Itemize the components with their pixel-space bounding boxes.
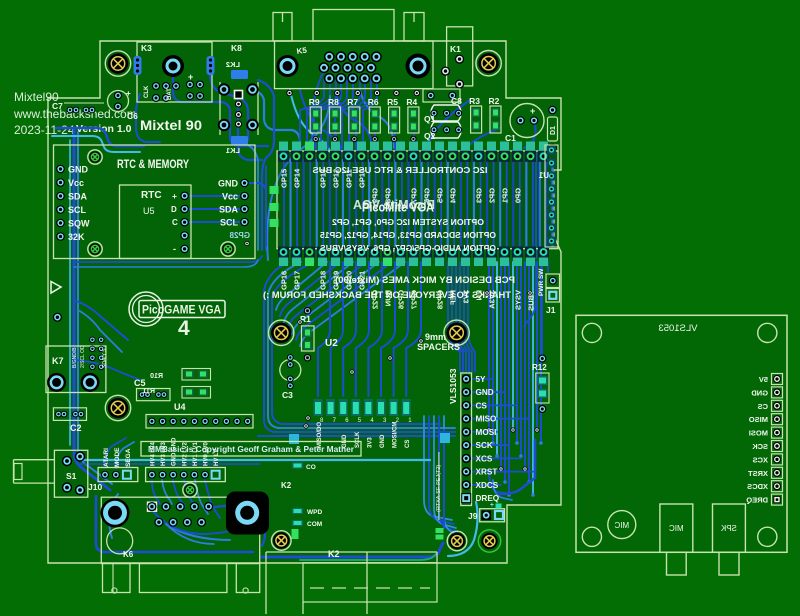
svg-text:+: +: [530, 106, 535, 116]
svg-text:R10: R10: [150, 373, 163, 380]
svg-text:+: +: [172, 191, 177, 201]
svg-text:J1: J1: [546, 305, 556, 315]
svg-text:R7: R7: [347, 97, 358, 107]
svg-text:S1: S1: [66, 471, 77, 481]
svg-text:OPTION SYSTEM I2C GP0, GP1, GP: OPTION SYSTEM I2C GP0, GP1, GP2: [332, 217, 484, 227]
svg-text:U1: U1: [538, 171, 549, 180]
svg-text:PWR SW: PWR SW: [538, 268, 545, 296]
svg-text:CS: CS: [758, 402, 768, 411]
svg-text:R3: R3: [469, 96, 480, 106]
svg-text:R2: R2: [489, 96, 500, 106]
svg-text:U5: U5: [143, 206, 155, 216]
svg-text:GP3: GP3: [474, 188, 483, 203]
svg-text:K5: K5: [296, 46, 308, 56]
svg-text:MOSI: MOSI: [749, 429, 768, 438]
svg-text:D: D: [171, 205, 177, 214]
svg-text:SQW: SQW: [68, 219, 90, 229]
svg-text:SPK: SPK: [720, 524, 737, 533]
svg-text:GP28: GP28: [229, 231, 250, 240]
svg-text:COM: COM: [307, 521, 322, 528]
svg-text:GND: GND: [751, 388, 768, 397]
svg-text:DREQ: DREQ: [476, 494, 500, 503]
svg-text:SEGA: SEGA: [125, 448, 132, 467]
svg-text:XCS: XCS: [753, 455, 768, 464]
svg-text:C8: C8: [451, 96, 462, 106]
svg-text:DREQ: DREQ: [746, 496, 768, 505]
svg-text:CLK: CLK: [144, 85, 150, 98]
svg-text:J9: J9: [468, 511, 478, 521]
svg-text:4: 4: [178, 317, 190, 340]
svg-text:R9: R9: [309, 97, 320, 107]
svg-text:GND: GND: [68, 165, 89, 175]
svg-text:SCL: SCL: [220, 218, 239, 228]
svg-text:SCK: SCK: [752, 442, 768, 451]
svg-text:VSYS: VSYS: [513, 290, 522, 310]
svg-text:B/GND/B: B/GND/B: [72, 347, 78, 368]
svg-text:PicoMite VGA: PicoMite VGA: [362, 201, 434, 215]
svg-text:XDCS: XDCS: [747, 482, 768, 491]
svg-text:C6: C6: [127, 111, 138, 121]
svg-text:K6: K6: [123, 550, 134, 559]
svg-text:LK2: LK2: [226, 60, 240, 69]
svg-text:K8: K8: [231, 43, 242, 53]
svg-text:K7: K7: [52, 356, 64, 366]
svg-text:MODE: MODE: [114, 447, 121, 467]
svg-text:+: +: [490, 502, 494, 509]
svg-text:XDCS: XDCS: [476, 481, 499, 490]
svg-text:XCS: XCS: [476, 454, 493, 463]
svg-text:SCLK: SCLK: [355, 431, 361, 448]
svg-text:GND: GND: [476, 388, 494, 397]
svg-text:C: C: [172, 218, 178, 227]
svg-text:2/SCL OD: 2/SCL OD: [80, 345, 86, 368]
svg-text:K3: K3: [141, 43, 152, 53]
svg-text:OPTION AUDIO GP5/GP7, GP6, VSY: OPTION AUDIO GP5/GP7, GP6, VSYS/VBUS: [320, 243, 496, 253]
svg-text:C7: C7: [52, 101, 63, 111]
svg-text:I2C CONTROLLER & RTC USE I2C B: I2C CONTROLLER & RTC USE I2C BUS: [312, 166, 488, 175]
svg-text:Q2: Q2: [424, 131, 436, 141]
svg-text:C5: C5: [134, 378, 146, 388]
svg-text:GND: GND: [218, 179, 239, 189]
svg-text:MIC: MIC: [614, 521, 629, 530]
svg-text:U4: U4: [174, 402, 186, 412]
svg-text:GP4: GP4: [448, 188, 457, 204]
svg-text:CO: CO: [306, 464, 316, 471]
svg-text:K1: K1: [450, 44, 461, 54]
svg-text:Vcc: Vcc: [68, 178, 84, 188]
svg-text:SPACERS: SPACERS: [417, 342, 460, 352]
svg-text:J10: J10: [88, 482, 102, 492]
svg-text:MOSI/CM: MOSI/CM: [393, 422, 399, 448]
svg-text:R11: R11: [142, 388, 155, 395]
svg-text:R4: R4: [406, 97, 417, 107]
svg-text:PicoGAME VGA: PicoGAME VGA: [142, 305, 221, 317]
svg-text:XRST: XRST: [476, 468, 498, 477]
svg-text:RTC & MEMORY: RTC & MEMORY: [117, 159, 189, 171]
svg-text:PCB DESIGN BY MICK AMES (Mixte: PCB DESIGN BY MICK AMES (Mixtel90): [335, 275, 515, 285]
svg-text:XRST: XRST: [748, 469, 768, 478]
svg-text:+: +: [126, 89, 131, 98]
svg-text:D1: D1: [550, 126, 557, 135]
svg-text:MOSI: MOSI: [476, 428, 497, 437]
svg-text:VLS1053: VLS1053: [658, 323, 697, 334]
svg-text:MISO: MISO: [476, 415, 498, 424]
svg-text:R8: R8: [328, 97, 339, 107]
svg-text:32K: 32K: [68, 232, 85, 242]
svg-text:R6: R6: [368, 97, 379, 107]
svg-text:R5: R5: [387, 97, 398, 107]
svg-text:MIC: MIC: [669, 524, 684, 533]
svg-text:SDA: SDA: [68, 192, 88, 202]
svg-text:DAT: DAT: [167, 88, 173, 100]
svg-text:GP18: GP18: [318, 271, 327, 290]
svg-text:GP15: GP15: [279, 169, 288, 188]
svg-text:C3: C3: [282, 390, 293, 400]
svg-text:VLS1053: VLS1053: [448, 368, 458, 404]
svg-text:CS: CS: [476, 401, 488, 410]
svg-text:GP5: GP5: [435, 188, 444, 203]
svg-text:C2: C2: [70, 423, 82, 433]
svg-text:SCK: SCK: [476, 441, 493, 450]
svg-text:5Y: 5Y: [476, 375, 487, 384]
svg-text:GP2: GP2: [487, 188, 496, 203]
svg-text:Vcc: Vcc: [222, 192, 238, 202]
svg-text:SDA/Y S: SDA/Y S: [102, 348, 108, 368]
svg-text:THANKS TO EVERYONE ON THE BACK: THANKS TO EVERYONE ON THE BACKSHED FORUM…: [263, 290, 511, 300]
svg-text:GP17: GP17: [292, 271, 301, 290]
svg-text:MISO: MISO: [749, 415, 768, 424]
svg-text:2023-11-24: 2023-11-24: [14, 123, 75, 137]
svg-text:U2: U2: [325, 338, 338, 349]
svg-text:K2: K2: [281, 481, 292, 490]
svg-text:5V: 5V: [759, 375, 768, 384]
svg-text:+: +: [188, 72, 193, 82]
svg-text:ATARI: ATARI: [103, 448, 110, 467]
svg-text:Mixtel 90: Mixtel 90: [140, 117, 202, 133]
svg-text:GP16: GP16: [279, 271, 288, 290]
svg-text:3V3: 3V3: [367, 437, 373, 448]
svg-text:K2: K2: [328, 549, 340, 559]
svg-text:RTC: RTC: [141, 190, 162, 201]
svg-text:SCL: SCL: [68, 205, 87, 215]
svg-text:OPTION SDCARD GP13, GP14, GP12: OPTION SDCARD GP13, GP14, GP12, GP15: [320, 230, 496, 240]
svg-text:LK1: LK1: [226, 146, 240, 155]
svg-text:GND: GND: [380, 434, 386, 448]
svg-text:R12: R12: [532, 363, 547, 372]
svg-text:SDA: SDA: [219, 205, 239, 215]
svg-text:(RTXA-SF-PEJ(T2): (RTXA-SF-PEJ(T2): [436, 465, 442, 512]
svg-text:9mm: 9mm: [425, 332, 446, 342]
svg-text:MMBasic is Copyright Geoff Gra: MMBasic is Copyright Geoff Graham & Pete…: [148, 444, 355, 454]
svg-text:GP1: GP1: [500, 188, 509, 203]
svg-text:-: -: [173, 244, 176, 254]
svg-text:CS: CS: [405, 440, 411, 448]
svg-text:WPD: WPD: [307, 509, 322, 516]
svg-text:GP14: GP14: [292, 168, 301, 188]
svg-text:GP0: GP0: [513, 188, 522, 203]
